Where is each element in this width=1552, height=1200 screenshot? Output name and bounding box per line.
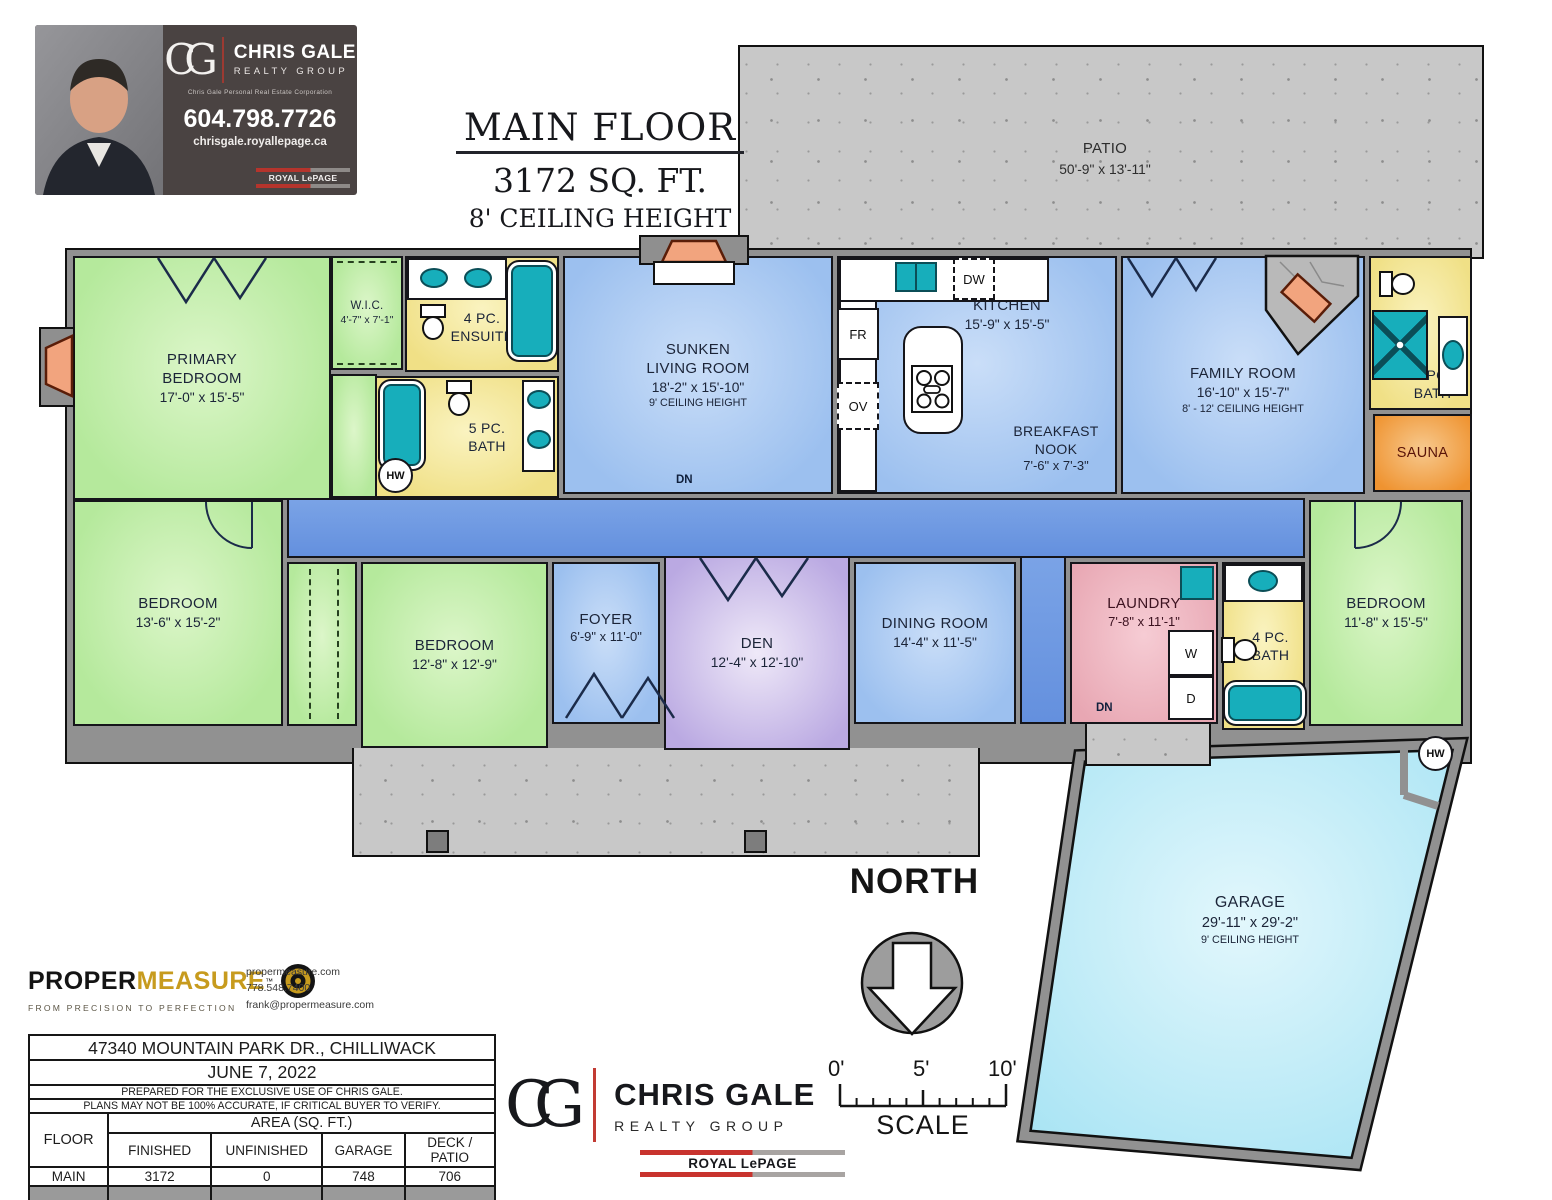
propermeasure-block: PROPER MEASURE ™ FROM PRECISION TO PERFE…: [28, 960, 319, 1013]
garage-label: GARAGE 29'-11" x 29'-2" 9' CEILING HEIGH…: [1140, 892, 1360, 948]
sink-icon: [527, 430, 551, 449]
card-text: CG CHRIS GALE REALTY GROUP Chris Gale Pe…: [163, 25, 357, 195]
col-garage: GARAGE: [322, 1133, 404, 1167]
row-unfinished: 0: [211, 1167, 322, 1186]
brand-name: ROYAL LePAGE: [256, 172, 350, 184]
room-dims: 17'-0" x 15'-5": [140, 389, 265, 407]
room-primary-bedroom: PRIMARY BEDROOM 17'-0" x 15'-5": [73, 256, 331, 500]
kitchen-island: [903, 326, 963, 434]
room-name: SAUNA: [1397, 444, 1448, 463]
shower-icon: [1372, 310, 1428, 380]
hall-closets: [287, 562, 357, 726]
room-label: FOYER 6'-9" x 11'-0": [556, 610, 656, 646]
title-area: 3172 SQ. FT.: [430, 161, 770, 200]
room-family: FAMILY ROOM 16'-10" x 15'-7" 8' - 12' CE…: [1121, 256, 1365, 494]
basement-steps: [1085, 720, 1211, 766]
card-subtitle: Chris Gale Personal Real Estate Corporat…: [163, 89, 357, 96]
kitchen-sink-icon: [895, 262, 917, 292]
room-name: DINING ROOM: [860, 614, 1010, 634]
room-name: BEDROOM: [118, 594, 238, 614]
scale-tick-10: 10': [988, 1056, 1017, 1082]
room-dims: 50'-9" x 13'-11": [985, 160, 1225, 180]
room-label: SAUNA: [1397, 444, 1448, 463]
kitchen-counter: [839, 258, 1049, 302]
room-den: DEN 12'-4" x 12'-10": [664, 556, 850, 750]
logo-bar: [640, 1172, 845, 1177]
spacer-row: [29, 1186, 495, 1200]
room-dims: 13'-6" x 15'-2": [118, 614, 238, 632]
pm-contact: propermeasure.com 778.548.7400 frank@pro…: [246, 964, 374, 1013]
agent-business-card: CG CHRIS GALE REALTY GROUP Chris Gale Pe…: [35, 25, 357, 195]
room-dims: 11'-8" x 15'-5": [1326, 614, 1446, 632]
fridge-icon: FR: [837, 308, 879, 360]
plan-title: MAIN FLOOR 3172 SQ. FT. 8' CEILING HEIGH…: [430, 106, 770, 233]
col-floor: FLOOR: [29, 1113, 108, 1167]
agent-photo: [35, 25, 163, 195]
laundry-sink-icon: [1180, 566, 1214, 600]
col-finished: FINISHED: [108, 1133, 211, 1167]
col-area: AREA (SQ. FT.): [108, 1113, 495, 1133]
room-label: 5 PC. BATH: [457, 419, 517, 455]
sink-icon: [527, 390, 551, 409]
stairs-down-label: DN: [676, 474, 693, 486]
room-bedroom-1: BEDROOM 13'-6" x 15'-2": [73, 500, 283, 726]
room-bedroom-3: BEDROOM 11'-8" x 15'-5": [1309, 500, 1463, 726]
room-name: 5 PC. BATH: [457, 419, 517, 455]
ov-label: OV: [849, 399, 868, 414]
dw-label: DW: [963, 272, 985, 287]
toilet-icon: [446, 380, 472, 416]
room-foyer: FOYER 6'-9" x 11'-0": [552, 562, 660, 724]
agent-website: chrisgale.royallepage.ca: [163, 136, 357, 148]
bathtub-icon: [1225, 682, 1305, 724]
sink-icon: [464, 268, 492, 288]
north-label: NORTH: [832, 862, 997, 902]
room-sauna: SAUNA: [1373, 414, 1472, 492]
room-wic: W.I.C. 4'-7" x 7'-1": [331, 256, 403, 370]
room-dims: 18'-2" x 15'-10": [642, 379, 754, 397]
agent-phone: 604.798.7726: [163, 105, 357, 134]
row-garage: 748: [322, 1167, 404, 1186]
room-name: BREAKFAST NOOK: [1002, 422, 1110, 458]
room-note: 8' - 12' CEILING HEIGHT: [1143, 402, 1343, 416]
col-unfinished: UNFINISHED: [211, 1133, 322, 1167]
divider: [593, 1068, 596, 1142]
row-deck: 706: [405, 1167, 495, 1186]
room-dims: 15'-9" x 15'-5": [940, 316, 1075, 334]
porch-post: [744, 830, 767, 853]
scale-label: SCALE: [858, 1110, 988, 1141]
row-floor: MAIN: [29, 1167, 108, 1186]
agent-name: CHRIS GALE: [234, 42, 356, 64]
hot-water-tank-icon: HW: [1418, 736, 1453, 771]
title-floor: MAIN FLOOR: [456, 106, 744, 154]
closet-shelf-lines: [337, 261, 397, 365]
sink-icon: [420, 268, 448, 288]
room-bedroom-2: BEDROOM 12'-8" x 12'-9": [361, 562, 548, 748]
table-note-1: PREPARED FOR THE EXCLUSIVE USE OF CHRIS …: [29, 1085, 495, 1099]
footer-brand-logo: CG CHRIS GALE REALTY GROUP ROYAL LePAGE: [505, 1068, 845, 1177]
oven-icon: OV: [837, 382, 879, 430]
room-name: SUNKEN LIVING ROOM: [642, 340, 754, 379]
porch-post: [426, 830, 449, 853]
room-sunken-living: SUNKEN LIVING ROOM 18'-2" x 15'-10" 9' C…: [563, 256, 833, 494]
dryer-icon: D: [1168, 676, 1214, 720]
footer-name-block: CHRIS GALE REALTY GROUP: [614, 1077, 815, 1134]
card-name-block: CHRIS GALE REALTY GROUP: [234, 42, 356, 77]
room-name: BEDROOM: [390, 636, 520, 656]
room-label: BEDROOM 12'-8" x 12'-9": [390, 636, 520, 673]
room-dining: DINING ROOM 14'-4" x 11'-5": [854, 562, 1016, 724]
hall-to-stairs: [1020, 556, 1066, 724]
plan-date: JUNE 7, 2022: [29, 1060, 495, 1085]
logo-bar: [256, 184, 350, 188]
title-ceiling: 8' CEILING HEIGHT: [430, 204, 770, 233]
cg-monogram: CG: [505, 1068, 589, 1142]
royal-lepage-logo: ROYAL LePAGE: [640, 1150, 845, 1177]
row-finished: 3172: [108, 1167, 211, 1186]
closet-hall: [331, 374, 377, 498]
toilet-icon: [420, 304, 446, 340]
washer-icon: W: [1168, 630, 1214, 676]
room-dims: 12'-4" x 12'-10": [692, 654, 822, 672]
closet-door-lines: [309, 569, 339, 719]
patio-label: PATIO 50'-9" x 13'-11": [985, 138, 1225, 180]
sink-icon: [1248, 570, 1278, 592]
hw-label: HW: [1426, 748, 1444, 760]
hot-water-tank-icon: HW: [378, 458, 413, 493]
room-dims: 7'-8" x 11'-1": [1088, 614, 1200, 631]
toilet-icon: [1379, 271, 1415, 297]
agent-group: REALTY GROUP: [234, 66, 356, 77]
room-name: GARAGE: [1140, 892, 1360, 914]
room-name: PATIO: [985, 138, 1225, 160]
scale-tick-5: 5': [913, 1056, 929, 1082]
cg-monogram: CG: [164, 35, 220, 84]
room-dims: 14'-4" x 11'-5": [860, 634, 1010, 652]
area-summary-table: 47340 MOUNTAIN PARK DR., CHILLIWACK JUNE…: [28, 1034, 496, 1200]
toilet-icon: [1221, 637, 1257, 663]
card-brand-row: CG CHRIS GALE REALTY GROUP: [163, 35, 357, 84]
dryer-label: D: [1186, 691, 1195, 706]
stairs-down-label: DN: [1096, 702, 1113, 714]
room-dims: 16'-10" x 15'-7": [1143, 384, 1343, 402]
fr-label: FR: [849, 327, 866, 342]
room-note: 9' CEILING HEIGHT: [642, 396, 754, 410]
brand-name: CHRIS GALE: [614, 1077, 815, 1113]
pm-phone: 778.548.7400: [246, 980, 374, 996]
room-name: FOYER: [556, 610, 656, 630]
divider: [222, 37, 224, 83]
hallway: [287, 498, 1305, 558]
washer-label: W: [1185, 646, 1197, 661]
sink-icon: [1442, 340, 1464, 370]
room-label: BEDROOM 13'-6" x 15'-2": [118, 594, 238, 631]
room-name: FAMILY ROOM: [1143, 364, 1343, 384]
room-dims: 7'-6" x 7'-3": [1002, 458, 1110, 475]
room-label: FAMILY ROOM 16'-10" x 15'-7" 8' - 12' CE…: [1143, 364, 1343, 415]
floor-plan-page: PATIO 50'-9" x 13'-11" GARAGE 29'-11" x …: [0, 0, 1552, 1200]
room-name: BEDROOM: [1326, 594, 1446, 614]
kitchen-sink-icon: [915, 262, 937, 292]
room-note: 9' CEILING HEIGHT: [1140, 933, 1360, 948]
room-label: BEDROOM 11'-8" x 15'-5": [1326, 594, 1446, 631]
hw-label: HW: [386, 470, 404, 482]
room-dims: 12'-8" x 12'-9": [390, 656, 520, 674]
room-name: PRIMARY BEDROOM: [140, 350, 265, 389]
room-dims: 6'-9" x 11'-0": [556, 629, 656, 646]
footer-brand-row: CG CHRIS GALE REALTY GROUP: [505, 1068, 845, 1142]
room-label: DEN 12'-4" x 12'-10": [692, 634, 822, 671]
room-label: DINING ROOM 14'-4" x 11'-5": [860, 614, 1010, 651]
bathtub-icon: [380, 381, 424, 469]
room-name: DEN: [692, 634, 822, 654]
brand-name: ROYAL LePAGE: [640, 1155, 845, 1172]
room-label: PRIMARY BEDROOM 17'-0" x 15'-5": [140, 350, 265, 407]
room-label: SUNKEN LIVING ROOM 18'-2" x 15'-10" 9' C…: [642, 340, 754, 411]
table-note-2: PLANS MAY NOT BE 100% ACCURATE, IF CRITI…: [29, 1099, 495, 1113]
table-row: MAIN 3172 0 748 706: [29, 1167, 495, 1186]
brand-group: REALTY GROUP: [614, 1118, 815, 1134]
pm-email: frank@propermeasure.com: [246, 997, 374, 1013]
pm-website: propermeasure.com: [246, 964, 374, 980]
col-deck: DECK / PATIO: [405, 1133, 495, 1167]
brand-proper: PROPER: [28, 967, 137, 996]
room-breakfast-nook-label: BREAKFAST NOOK 7'-6" x 7'-3": [1002, 422, 1110, 475]
bathtub-icon: [508, 262, 556, 360]
dishwasher-icon: DW: [953, 258, 995, 300]
royal-lepage-logo: ROYAL LePAGE: [256, 168, 350, 188]
property-address: 47340 MOUNTAIN PARK DR., CHILLIWACK: [29, 1035, 495, 1060]
room-dims: 29'-11" x 29'-2": [1140, 914, 1360, 934]
